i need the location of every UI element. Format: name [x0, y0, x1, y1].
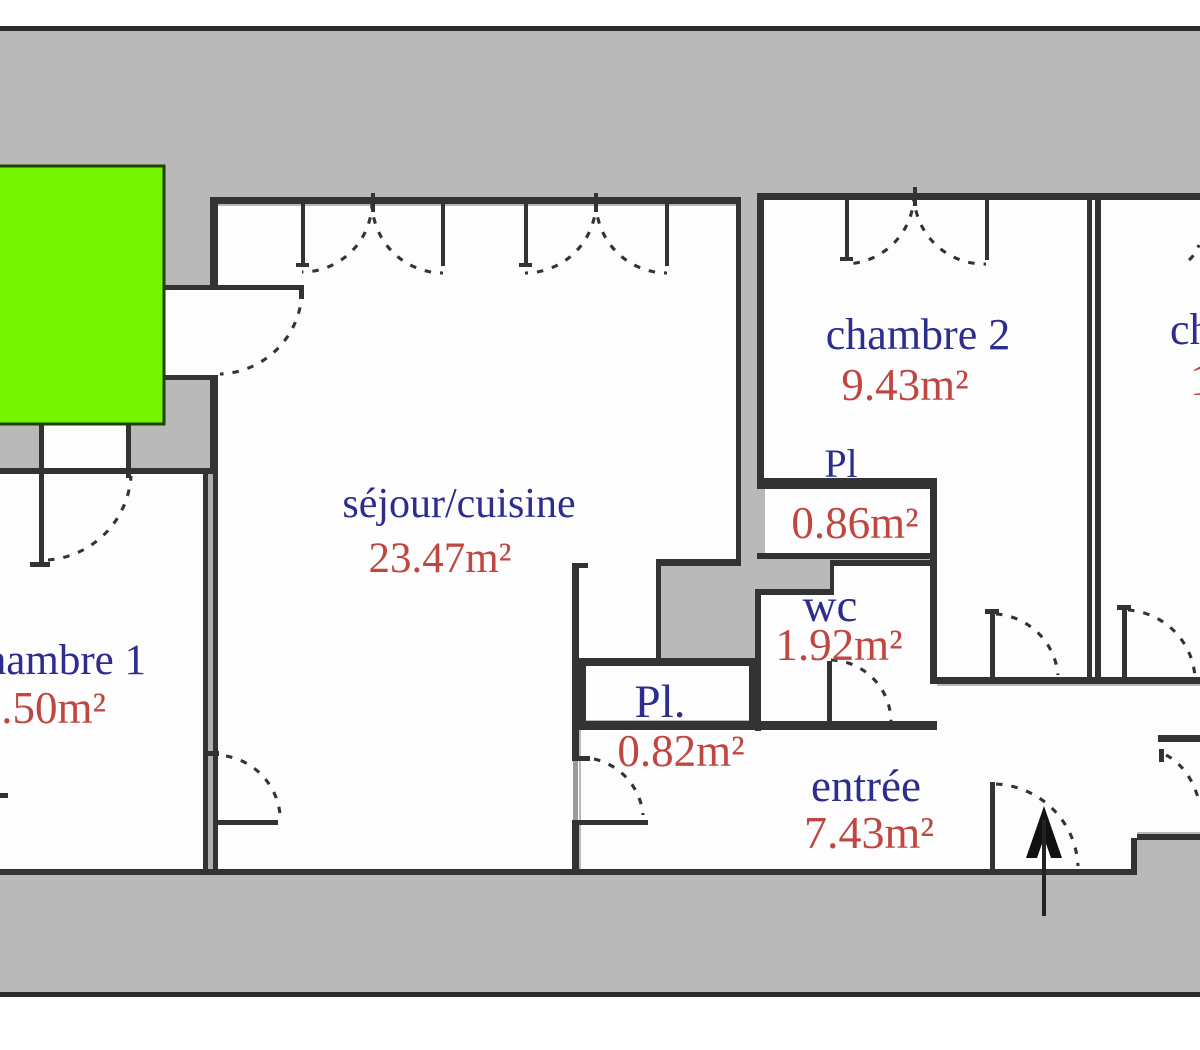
svg-text:7.43m²: 7.43m²	[804, 807, 934, 858]
svg-text:0.82m²: 0.82m²	[617, 726, 744, 776]
svg-text:1.92m²: 1.92m²	[775, 620, 902, 670]
svg-text:9.43m²: 9.43m²	[841, 360, 968, 410]
svg-text:13.50m²: 13.50m²	[0, 683, 106, 733]
svg-text:entrée: entrée	[811, 761, 921, 811]
svg-text:séjour/cuisine: séjour/cuisine	[342, 481, 575, 527]
svg-text:chambre 2: chambre 2	[826, 310, 1010, 359]
svg-text:Pl: Pl	[824, 441, 857, 486]
svg-text:15.50m²: 15.50m²	[1190, 355, 1200, 405]
svg-text:Pl.: Pl.	[635, 676, 686, 728]
svg-text:chambre 1: chambre 1	[0, 637, 146, 684]
svg-text:chambre 3: chambre 3	[1170, 305, 1200, 354]
svg-text:23.47m²: 23.47m²	[368, 535, 511, 582]
svg-text:0.86m²: 0.86m²	[791, 498, 918, 548]
